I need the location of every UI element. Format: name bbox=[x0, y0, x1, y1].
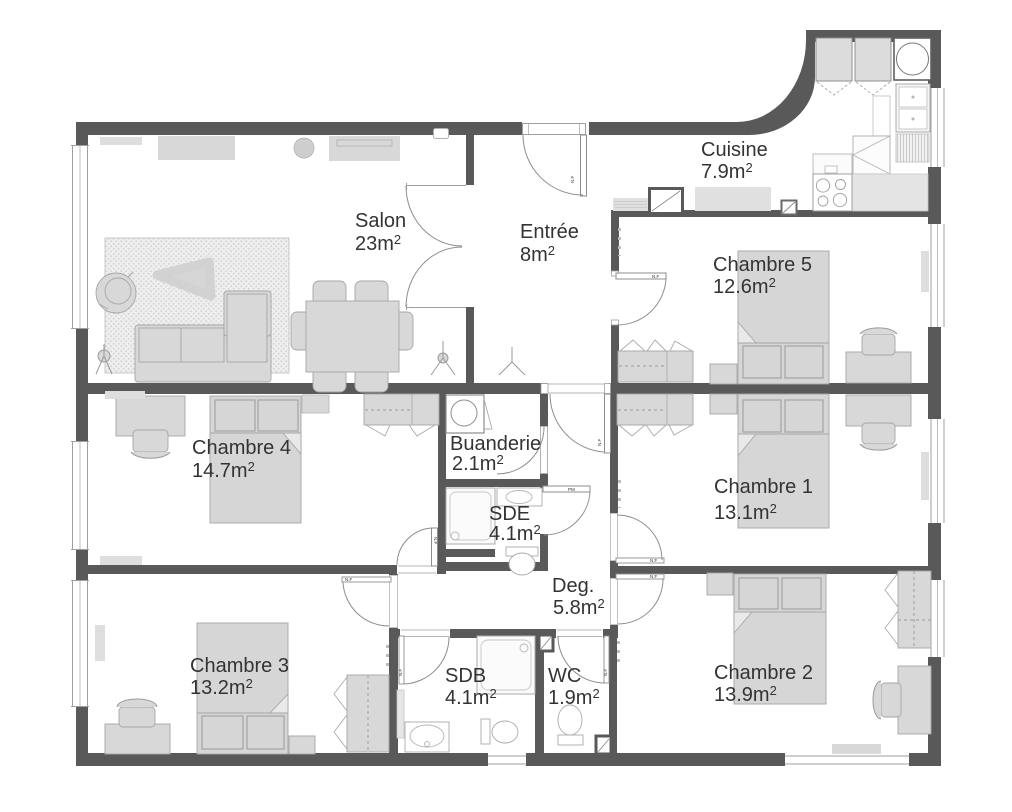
svg-text:Deg.: Deg. bbox=[552, 575, 594, 597]
svg-text:13.1m2: 13.1m2 bbox=[714, 501, 777, 524]
svg-text:5.8m2: 5.8m2 bbox=[553, 596, 605, 619]
svg-text:N.F: N.F bbox=[597, 439, 602, 447]
svg-text:12.6m2: 12.6m2 bbox=[713, 275, 776, 298]
svg-text:PM: PM bbox=[568, 487, 575, 492]
svg-text:1.9m2: 1.9m2 bbox=[548, 686, 600, 709]
svg-text:13.2m2: 13.2m2 bbox=[190, 676, 253, 699]
svg-text:N.F: N.F bbox=[570, 176, 575, 184]
svg-text:Chambre 5: Chambre 5 bbox=[713, 254, 812, 276]
svg-text:2.1m2: 2.1m2 bbox=[452, 452, 504, 475]
svg-text:4.1m2: 4.1m2 bbox=[489, 522, 541, 545]
svg-text:7.9m2: 7.9m2 bbox=[701, 160, 753, 183]
svg-text:SDE: SDE bbox=[489, 503, 530, 525]
svg-text:N.F: N.F bbox=[650, 574, 658, 579]
svg-text:4.1m2: 4.1m2 bbox=[445, 686, 497, 709]
svg-text:Entrée: Entrée bbox=[520, 221, 579, 243]
svg-text:N.F: N.F bbox=[398, 669, 403, 677]
svg-text:N.F: N.F bbox=[650, 558, 658, 563]
svg-text:N.F: N.F bbox=[433, 537, 438, 545]
svg-text:N.F: N.F bbox=[603, 669, 608, 677]
svg-text:N.F: N.F bbox=[345, 577, 353, 582]
svg-text:Salon: Salon bbox=[355, 210, 406, 232]
svg-text:SDB: SDB bbox=[445, 665, 486, 687]
svg-text:N.F: N.F bbox=[652, 274, 660, 279]
svg-text:Chambre 3: Chambre 3 bbox=[190, 655, 289, 677]
svg-text:Chambre 2: Chambre 2 bbox=[714, 662, 813, 684]
svg-text:Cuisine: Cuisine bbox=[701, 139, 768, 161]
svg-text:Chambre 4: Chambre 4 bbox=[192, 437, 291, 459]
svg-text:WC: WC bbox=[548, 665, 581, 687]
svg-text:14.7m2: 14.7m2 bbox=[192, 459, 255, 482]
svg-text:Chambre 1: Chambre 1 bbox=[714, 476, 813, 498]
svg-text:13.9m2: 13.9m2 bbox=[714, 683, 777, 706]
